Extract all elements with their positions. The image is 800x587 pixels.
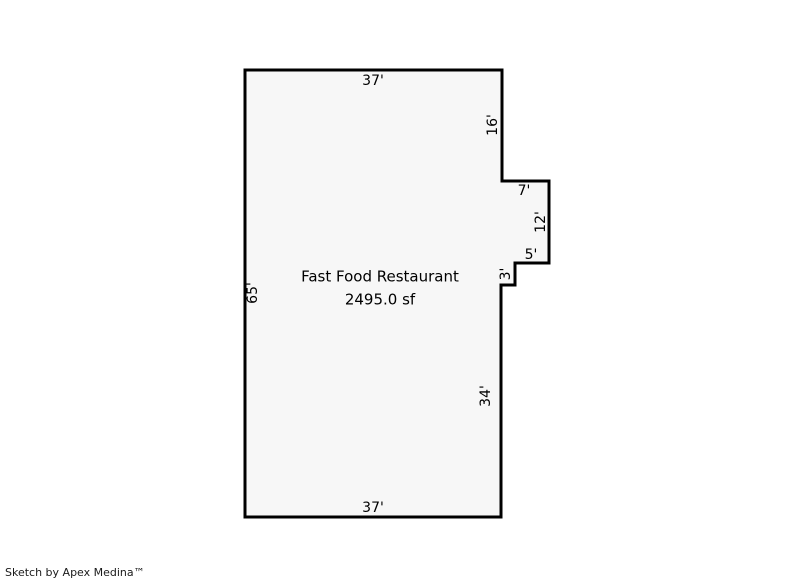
dimension-label-notch-top: 5' xyxy=(525,248,538,262)
dimension-label-right-upper: 16' xyxy=(486,114,500,136)
dimension-label-right-lower: 34' xyxy=(479,385,493,407)
dimension-label-jut-right: 12' xyxy=(534,211,548,233)
sketch-credit: Sketch by Apex Medina™ xyxy=(5,566,145,579)
dimension-label-left: 65' xyxy=(246,282,260,304)
room-title: Fast Food Restaurant xyxy=(301,270,459,285)
dimension-label-notch-left: 3' xyxy=(499,268,513,281)
dimension-label-jut-top: 7' xyxy=(518,184,531,198)
dimension-label-bottom: 37' xyxy=(362,501,384,515)
dimension-label-top: 37' xyxy=(362,74,384,88)
sketch-canvas: 37' 16' 7' 12' 5' 3' 34' 37' 65' Fast Fo… xyxy=(0,0,800,587)
room-area: 2495.0 sf xyxy=(345,293,415,308)
